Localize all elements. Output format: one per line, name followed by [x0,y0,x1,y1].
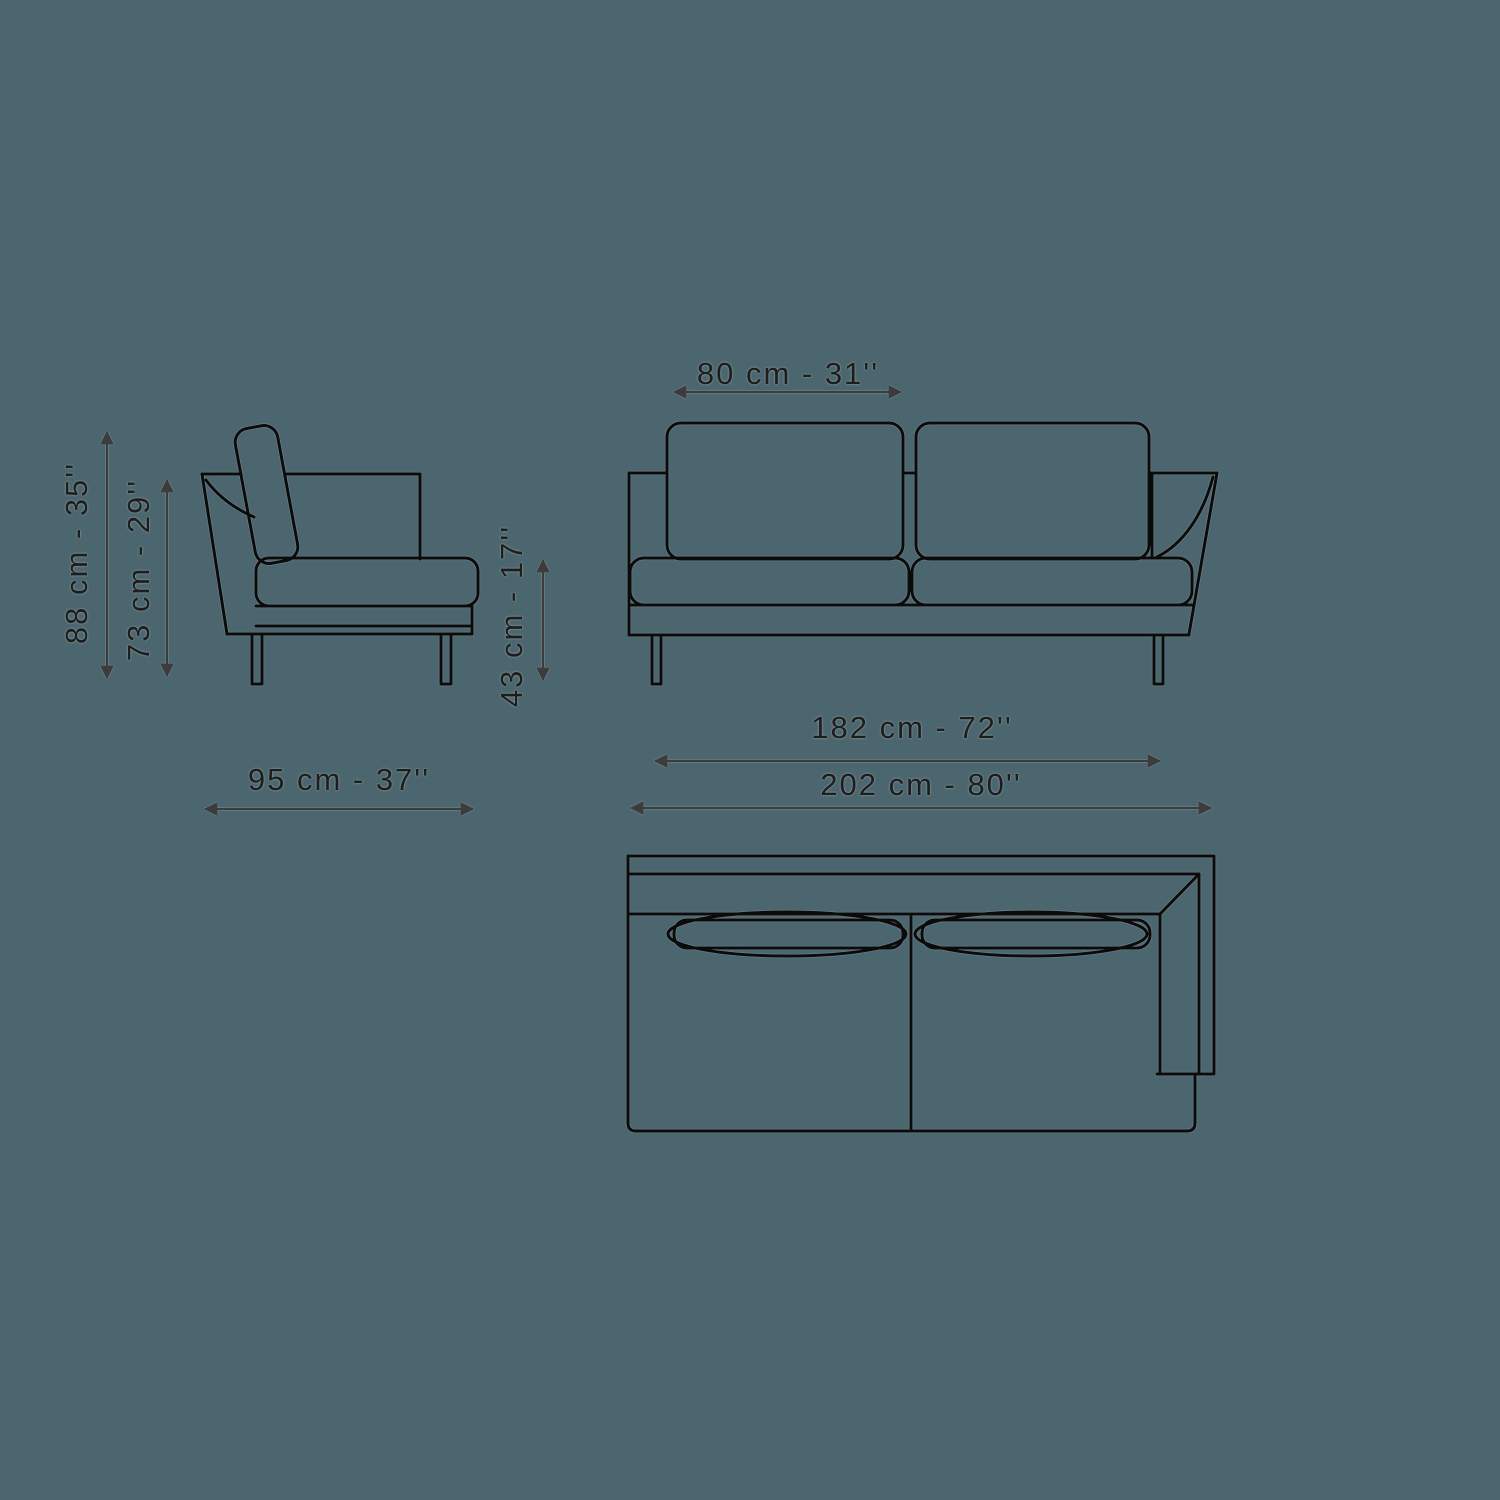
side-base [227,606,472,634]
sofa-dimensions-diagram: 88 cm - 35'' 73 cm - 29'' 43 cm - 17'' 9… [0,0,1500,1500]
front-leg-right [1154,635,1163,684]
diagram-artwork [0,0,1500,1500]
side-leg-left [252,634,262,684]
front-arm-right [1152,473,1217,634]
top-cushion-right [922,920,1150,948]
dimension-arrows [107,392,1211,809]
top-outer-edge [628,856,1214,1074]
seat-width-label: 182 cm - 72'' [811,710,1013,746]
overall-height-label: 88 cm - 35'' [59,462,95,644]
sofa-front-view [629,423,1217,684]
overall-width-label: 202 cm - 80'' [820,767,1022,803]
side-back-cushion [233,423,300,566]
top-arm [1160,874,1199,1074]
seat-height-label: 43 cm - 17'' [494,525,530,707]
front-seat-cushion-right [912,558,1192,605]
sofa-top-view [628,856,1214,1131]
sofa-side-view [202,423,478,684]
front-back-cushion-left [667,423,903,559]
front-back-cushion-right [916,423,1149,559]
back-height-label: 73 cm - 29'' [121,479,157,661]
front-leg-left [652,635,661,684]
front-seat-cushion-left [630,558,909,605]
top-cushion-left [674,920,903,948]
depth-label: 95 cm - 37'' [248,762,430,798]
front-base [629,605,1194,635]
side-seat-cushion [256,558,478,606]
side-leg-right [441,634,451,684]
back-cushion-width-label: 80 cm - 31'' [697,356,879,392]
